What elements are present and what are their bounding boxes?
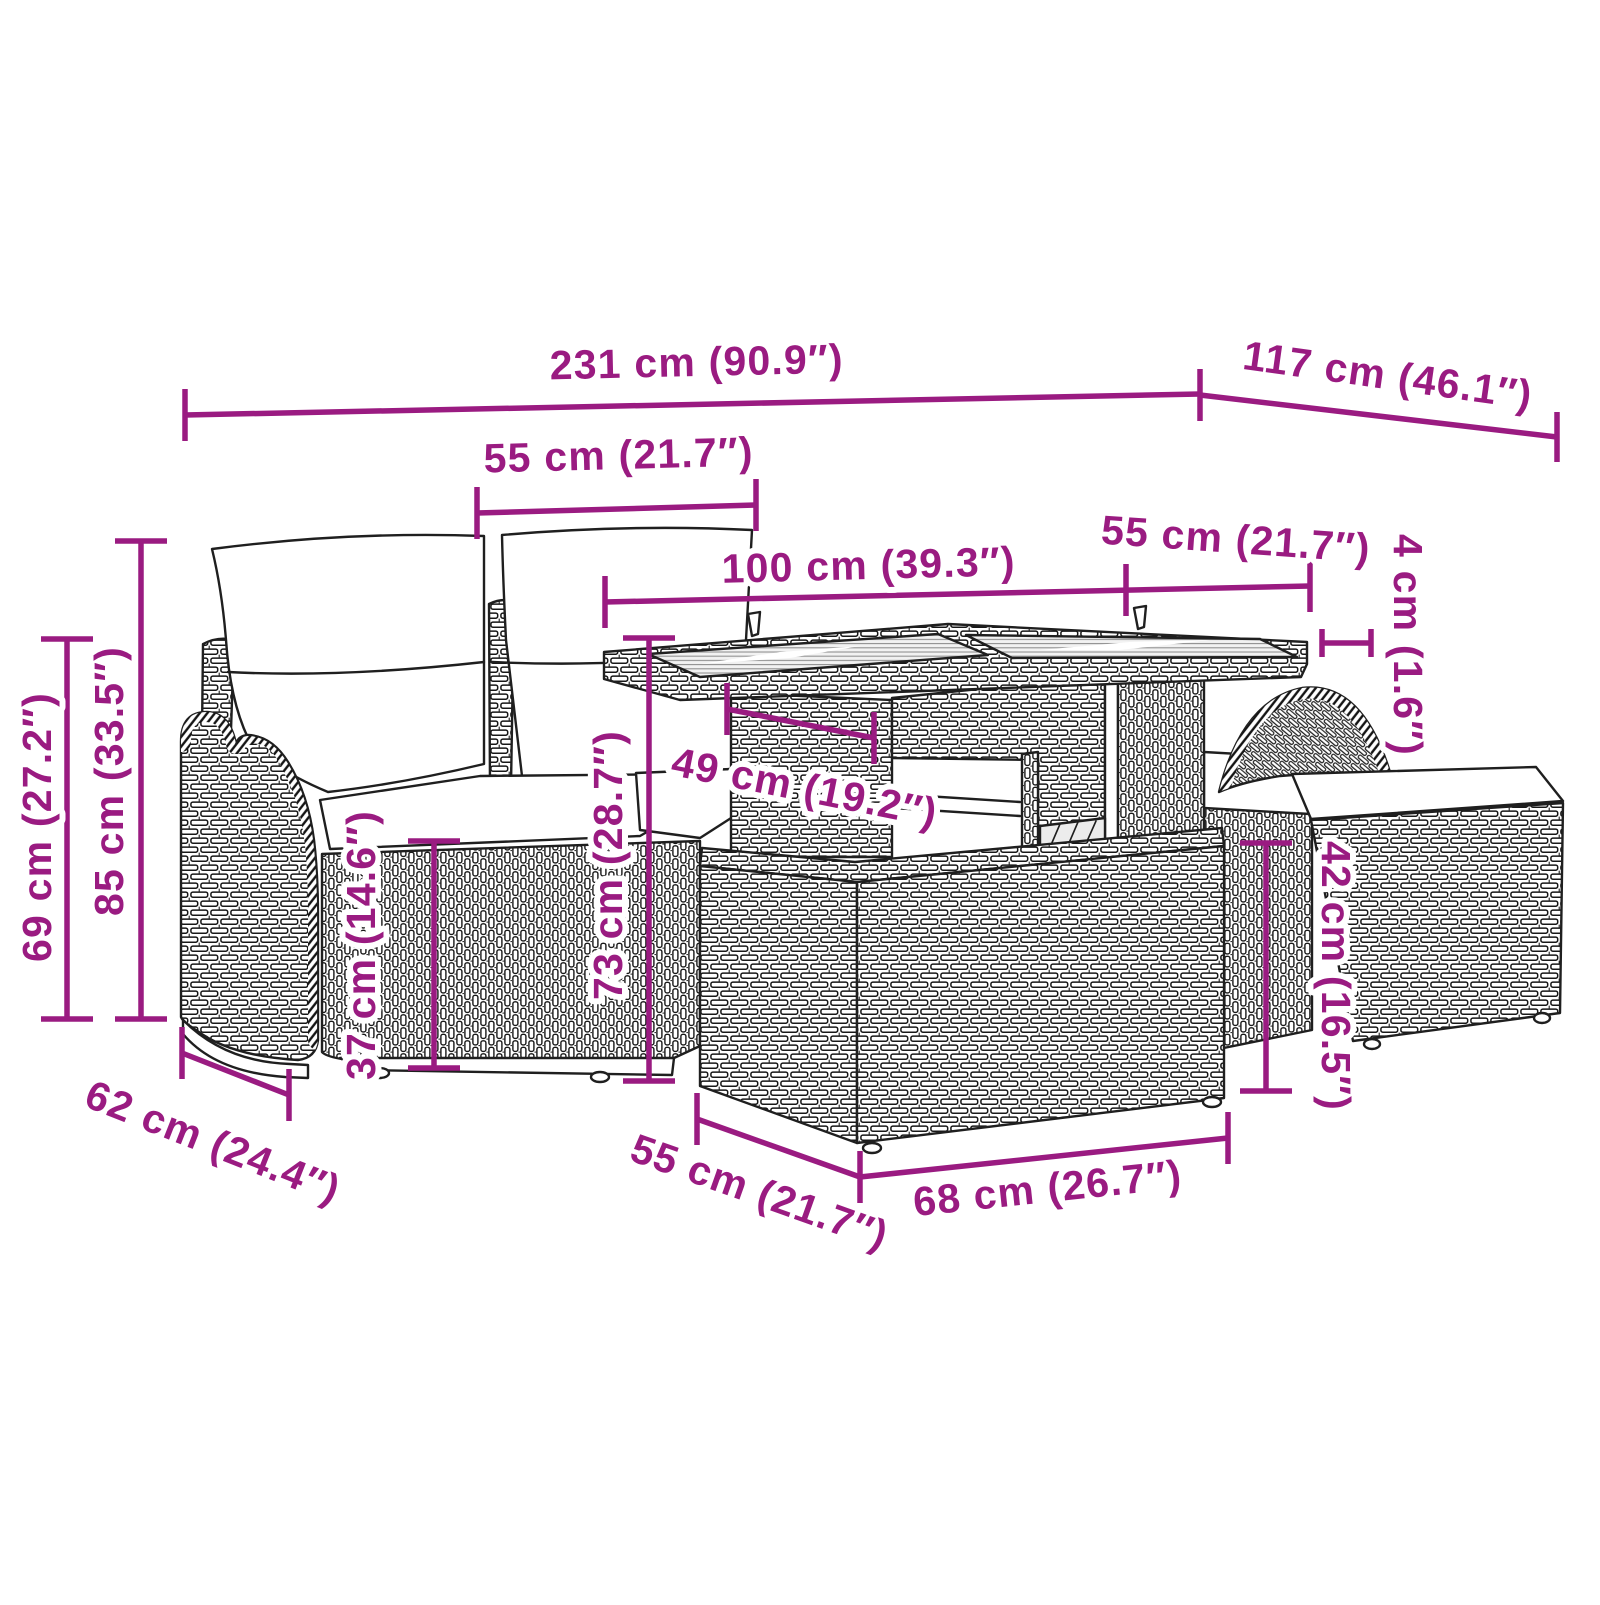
svg-text:69 cm (27.2″): 69 cm (27.2″)	[14, 692, 60, 962]
svg-text:55 cm (21.7″): 55 cm (21.7″)	[483, 428, 754, 481]
svg-text:37 cm (14.6″): 37 cm (14.6″)	[338, 810, 384, 1080]
svg-text:4 cm (1.6″): 4 cm (1.6″)	[1385, 534, 1431, 756]
svg-text:85 cm (33.5″): 85 cm (33.5″)	[86, 646, 132, 916]
svg-text:231 cm (90.9″): 231 cm (90.9″)	[549, 336, 844, 389]
svg-text:73 cm (28.7″): 73 cm (28.7″)	[585, 730, 631, 1000]
svg-text:42 cm (16.5″): 42 cm (16.5″)	[1313, 841, 1359, 1111]
svg-text:100 cm (39.3″): 100 cm (39.3″)	[721, 538, 1016, 592]
